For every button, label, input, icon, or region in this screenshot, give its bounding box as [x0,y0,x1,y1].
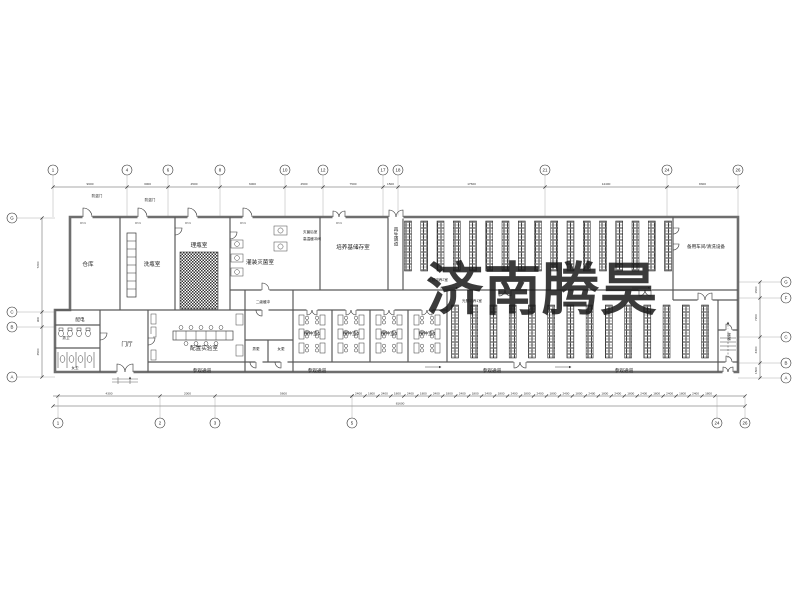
svg-text:12: 12 [321,168,326,173]
svg-text:17500: 17500 [467,182,476,186]
label-bottle-sort: 理瓶室 [191,241,208,249]
svg-text:1800: 1800 [575,392,582,396]
svg-text:A: A [785,376,788,381]
svg-text:1800: 1800 [705,392,712,396]
svg-text:26: 26 [743,421,748,426]
label-spare-workshop: 备用车间/清洗设备 [687,243,725,250]
label-medium-storage: 培养基储存室 [336,243,370,251]
svg-text:8300: 8300 [699,182,706,186]
label-security-door-1: 防盗门 [92,193,103,198]
label-ht-buffer: 高温缓冲间 [303,236,321,241]
svg-text:1800: 1800 [394,392,401,396]
svg-text:2400: 2400 [537,392,544,396]
svg-text:1800: 1800 [627,392,634,396]
label-warehouse: 仓库 [82,260,94,268]
svg-text:5600: 5600 [280,392,287,396]
svg-text:2400: 2400 [614,392,621,396]
svg-text:7500: 7500 [350,182,357,186]
svg-text:2400: 2400 [485,392,492,396]
svg-text:81600: 81600 [396,402,405,406]
label-inoc-2: 接种室2 [343,330,360,337]
label-security-door-2: 防盗门 [145,197,156,202]
svg-text:2400: 2400 [459,392,466,396]
label-power-room: 配电 [75,316,85,323]
svg-text:2400: 2400 [355,392,362,396]
svg-text:C: C [784,335,787,340]
svg-text:18: 18 [396,168,401,173]
label-stairs: 楼梯 [727,332,731,341]
door-tag-4: M721 [240,222,247,225]
svg-text:2400: 2400 [562,392,569,396]
svg-text:2000: 2000 [184,392,191,396]
svg-text:1500: 1500 [387,182,394,186]
svg-text:17: 17 [381,168,386,173]
svg-text:4500: 4500 [301,182,308,186]
svg-text:7200: 7200 [754,314,758,321]
bottle-sorting-equipment-hatch [180,252,218,309]
svg-text:1500: 1500 [754,367,758,374]
svg-text:A: A [11,375,14,380]
label-female-wc: 女卫 [71,365,79,370]
svg-text:9600: 9600 [87,182,94,186]
label-male-wc: 男卫 [62,335,70,340]
bottle-rack-ladder [127,233,136,297]
watermark-text: 济南腾昊 [426,258,658,322]
svg-text:3300: 3300 [754,346,758,353]
svg-text:B: B [785,361,788,366]
door-tag-5: M721 [336,222,343,225]
svg-text:1800: 1800 [679,392,686,396]
label-prep-lab: 配置实验室 [190,344,218,352]
svg-text:1800: 1800 [653,392,660,396]
svg-text:10: 10 [283,168,288,173]
svg-text:1800: 1800 [368,392,375,396]
svg-text:1800: 1800 [420,392,427,396]
floor-plan-drawing: 1960043000645008600010450012750017150018… [0,0,800,600]
svg-text:2400: 2400 [381,392,388,396]
svg-text:24: 24 [665,168,670,173]
label-inoc-1: 接种室1 [304,330,321,337]
label-regen-corridor: 再生通道 [394,227,399,247]
svg-text:26: 26 [736,168,741,173]
label-fill-sterilize: 灌装灭菌室 [246,258,274,266]
svg-text:1800: 1800 [498,392,505,396]
label-visit-corridor-4: 参观通道 [615,367,634,374]
svg-text:4500: 4500 [191,182,198,186]
svg-text:24: 24 [715,421,720,426]
label-female-change: 女更 [277,346,285,351]
svg-text:2400: 2400 [666,392,673,396]
svg-text:1800: 1800 [601,392,608,396]
door-tag-3: M721 [185,222,192,225]
svg-text:2400: 2400 [640,392,647,396]
svg-text:21: 21 [543,168,548,173]
svg-text:G: G [10,216,14,221]
svg-text:900: 900 [36,317,40,322]
svg-text:2400: 2400 [407,392,414,396]
svg-text:1800: 1800 [550,392,557,396]
label-visit-corridor-2: 参观通道 [308,367,327,374]
svg-text:2400: 2400 [588,392,595,396]
svg-text:B: B [11,325,14,330]
label-entry-hall: 门厅 [121,340,133,348]
svg-text:2400: 2400 [692,392,699,396]
label-inoc-3: 接种室3 [381,330,398,337]
svg-text:2400: 2400 [433,392,440,396]
svg-text:4300: 4300 [106,392,113,396]
svg-text:F: F [785,296,788,301]
svg-text:7200: 7200 [36,261,40,268]
door-tag-1: M721 [80,222,87,225]
svg-text:G: G [784,280,788,285]
svg-text:1500: 1500 [754,286,758,293]
svg-text:1800: 1800 [446,392,453,396]
label-bottle-wash: 洗瓶室 [144,260,161,268]
label-inoc-4: 接种室4 [419,330,436,337]
svg-text:14400: 14400 [602,182,611,186]
door-tag-2: M721 [135,222,142,225]
svg-text:4500: 4500 [36,348,40,355]
label-buffer-2: 二级缓冲 [256,299,271,304]
svg-text:3000: 3000 [144,182,151,186]
svg-text:6000: 6000 [249,182,256,186]
label-male-change: 男更 [252,346,260,351]
svg-text:2400: 2400 [511,392,518,396]
label-post-sterilize: 灭菌后室 [303,229,318,234]
svg-text:1800: 1800 [524,392,531,396]
label-visit-corridor-1: 参观通道 [193,367,212,374]
svg-text:1800: 1800 [472,392,479,396]
svg-text:C: C [10,310,13,315]
label-visit-corridor-3: 参观通道 [483,367,502,374]
